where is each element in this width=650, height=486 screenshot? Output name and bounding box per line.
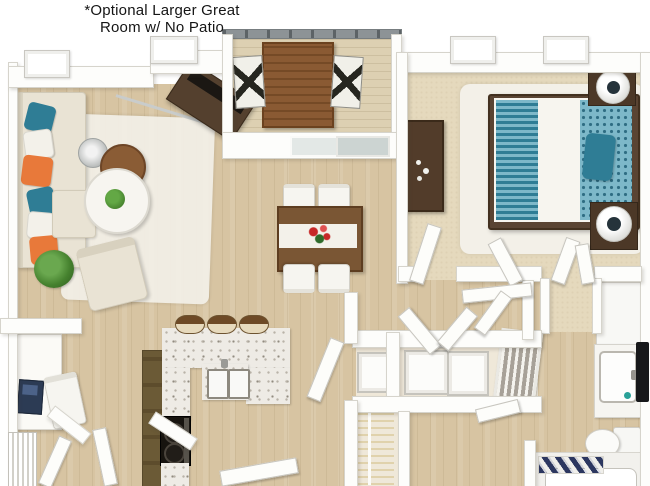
laptop-screen	[22, 384, 38, 395]
window-bedroom-2	[543, 36, 589, 64]
sliding-door-pane-left	[290, 136, 340, 157]
wall-coat-closet-right	[398, 411, 410, 486]
sink-basin-left	[207, 369, 229, 399]
vanity-cup	[624, 392, 631, 399]
kitchen-counter-bottom	[161, 463, 189, 486]
dining-chair-bottom-right	[318, 264, 350, 293]
wall-coat-closet-left	[344, 400, 358, 486]
bar-stool-3	[239, 315, 269, 334]
dining-chair-bottom-left	[283, 264, 315, 293]
closet-shelf-support	[368, 413, 371, 485]
wall-tub-side	[524, 440, 536, 486]
laptop	[17, 379, 44, 415]
patio-chair-left	[232, 55, 266, 109]
window-bedroom-1	[450, 36, 496, 64]
wall-left-outer	[8, 62, 18, 486]
window-living-1	[24, 50, 70, 78]
stove-burner-2	[164, 443, 185, 464]
washer	[404, 350, 449, 395]
wall-closet-stub-right	[592, 278, 602, 334]
kitchen-counter-right	[246, 368, 290, 404]
dresser-knob-1	[416, 160, 421, 165]
kitchen-counter-left	[162, 368, 190, 420]
sink-faucet	[221, 359, 228, 368]
table-lamp-bottom	[596, 206, 632, 242]
dryer	[447, 351, 489, 396]
plan-title: *Optional Larger Great Room w/ No Patio	[12, 2, 312, 36]
dresser-knob-3	[417, 176, 422, 181]
dresser-knob-2	[423, 168, 429, 174]
sofa-pillow-orange-1	[20, 154, 53, 187]
dresser	[402, 120, 444, 212]
bathroom-tall-cabinet	[596, 282, 643, 346]
flower-centerpiece	[305, 221, 333, 248]
plan-title-line1: *Optional Larger Great	[12, 2, 312, 19]
window-living-2	[150, 36, 198, 64]
bathroom-mirror	[636, 342, 649, 402]
plan-title-line2: Room w/ No Patio	[12, 19, 312, 36]
wall-bedroom-left	[396, 52, 408, 284]
louvered-closet-door	[8, 432, 37, 486]
wall-nook-top	[0, 318, 82, 334]
bar-stool-2	[207, 315, 237, 334]
towel-rack	[538, 456, 604, 474]
sliding-door-pane-right	[336, 136, 390, 157]
bar-stool-1	[175, 315, 205, 334]
wall-bedroom-top	[398, 52, 644, 73]
wall-patio-left	[222, 34, 233, 138]
patio-table	[262, 42, 334, 128]
bed-teal-runner	[496, 100, 538, 220]
floor-plan-image: *Optional Larger Great Room w/ No Patio	[0, 0, 650, 486]
wall-laundry-pillar	[386, 332, 400, 398]
coat-closet-wire-shelving	[358, 413, 394, 485]
wall-hall-upper	[344, 292, 358, 344]
table-lamp-top	[596, 70, 630, 104]
floor-plant	[34, 250, 74, 288]
sink-basin-right	[228, 369, 250, 399]
coffee-table-plant	[105, 189, 125, 209]
bed-accent-pillow	[582, 133, 617, 182]
wall-closet-stub-left	[540, 278, 550, 334]
patio-chair-right	[330, 55, 364, 109]
